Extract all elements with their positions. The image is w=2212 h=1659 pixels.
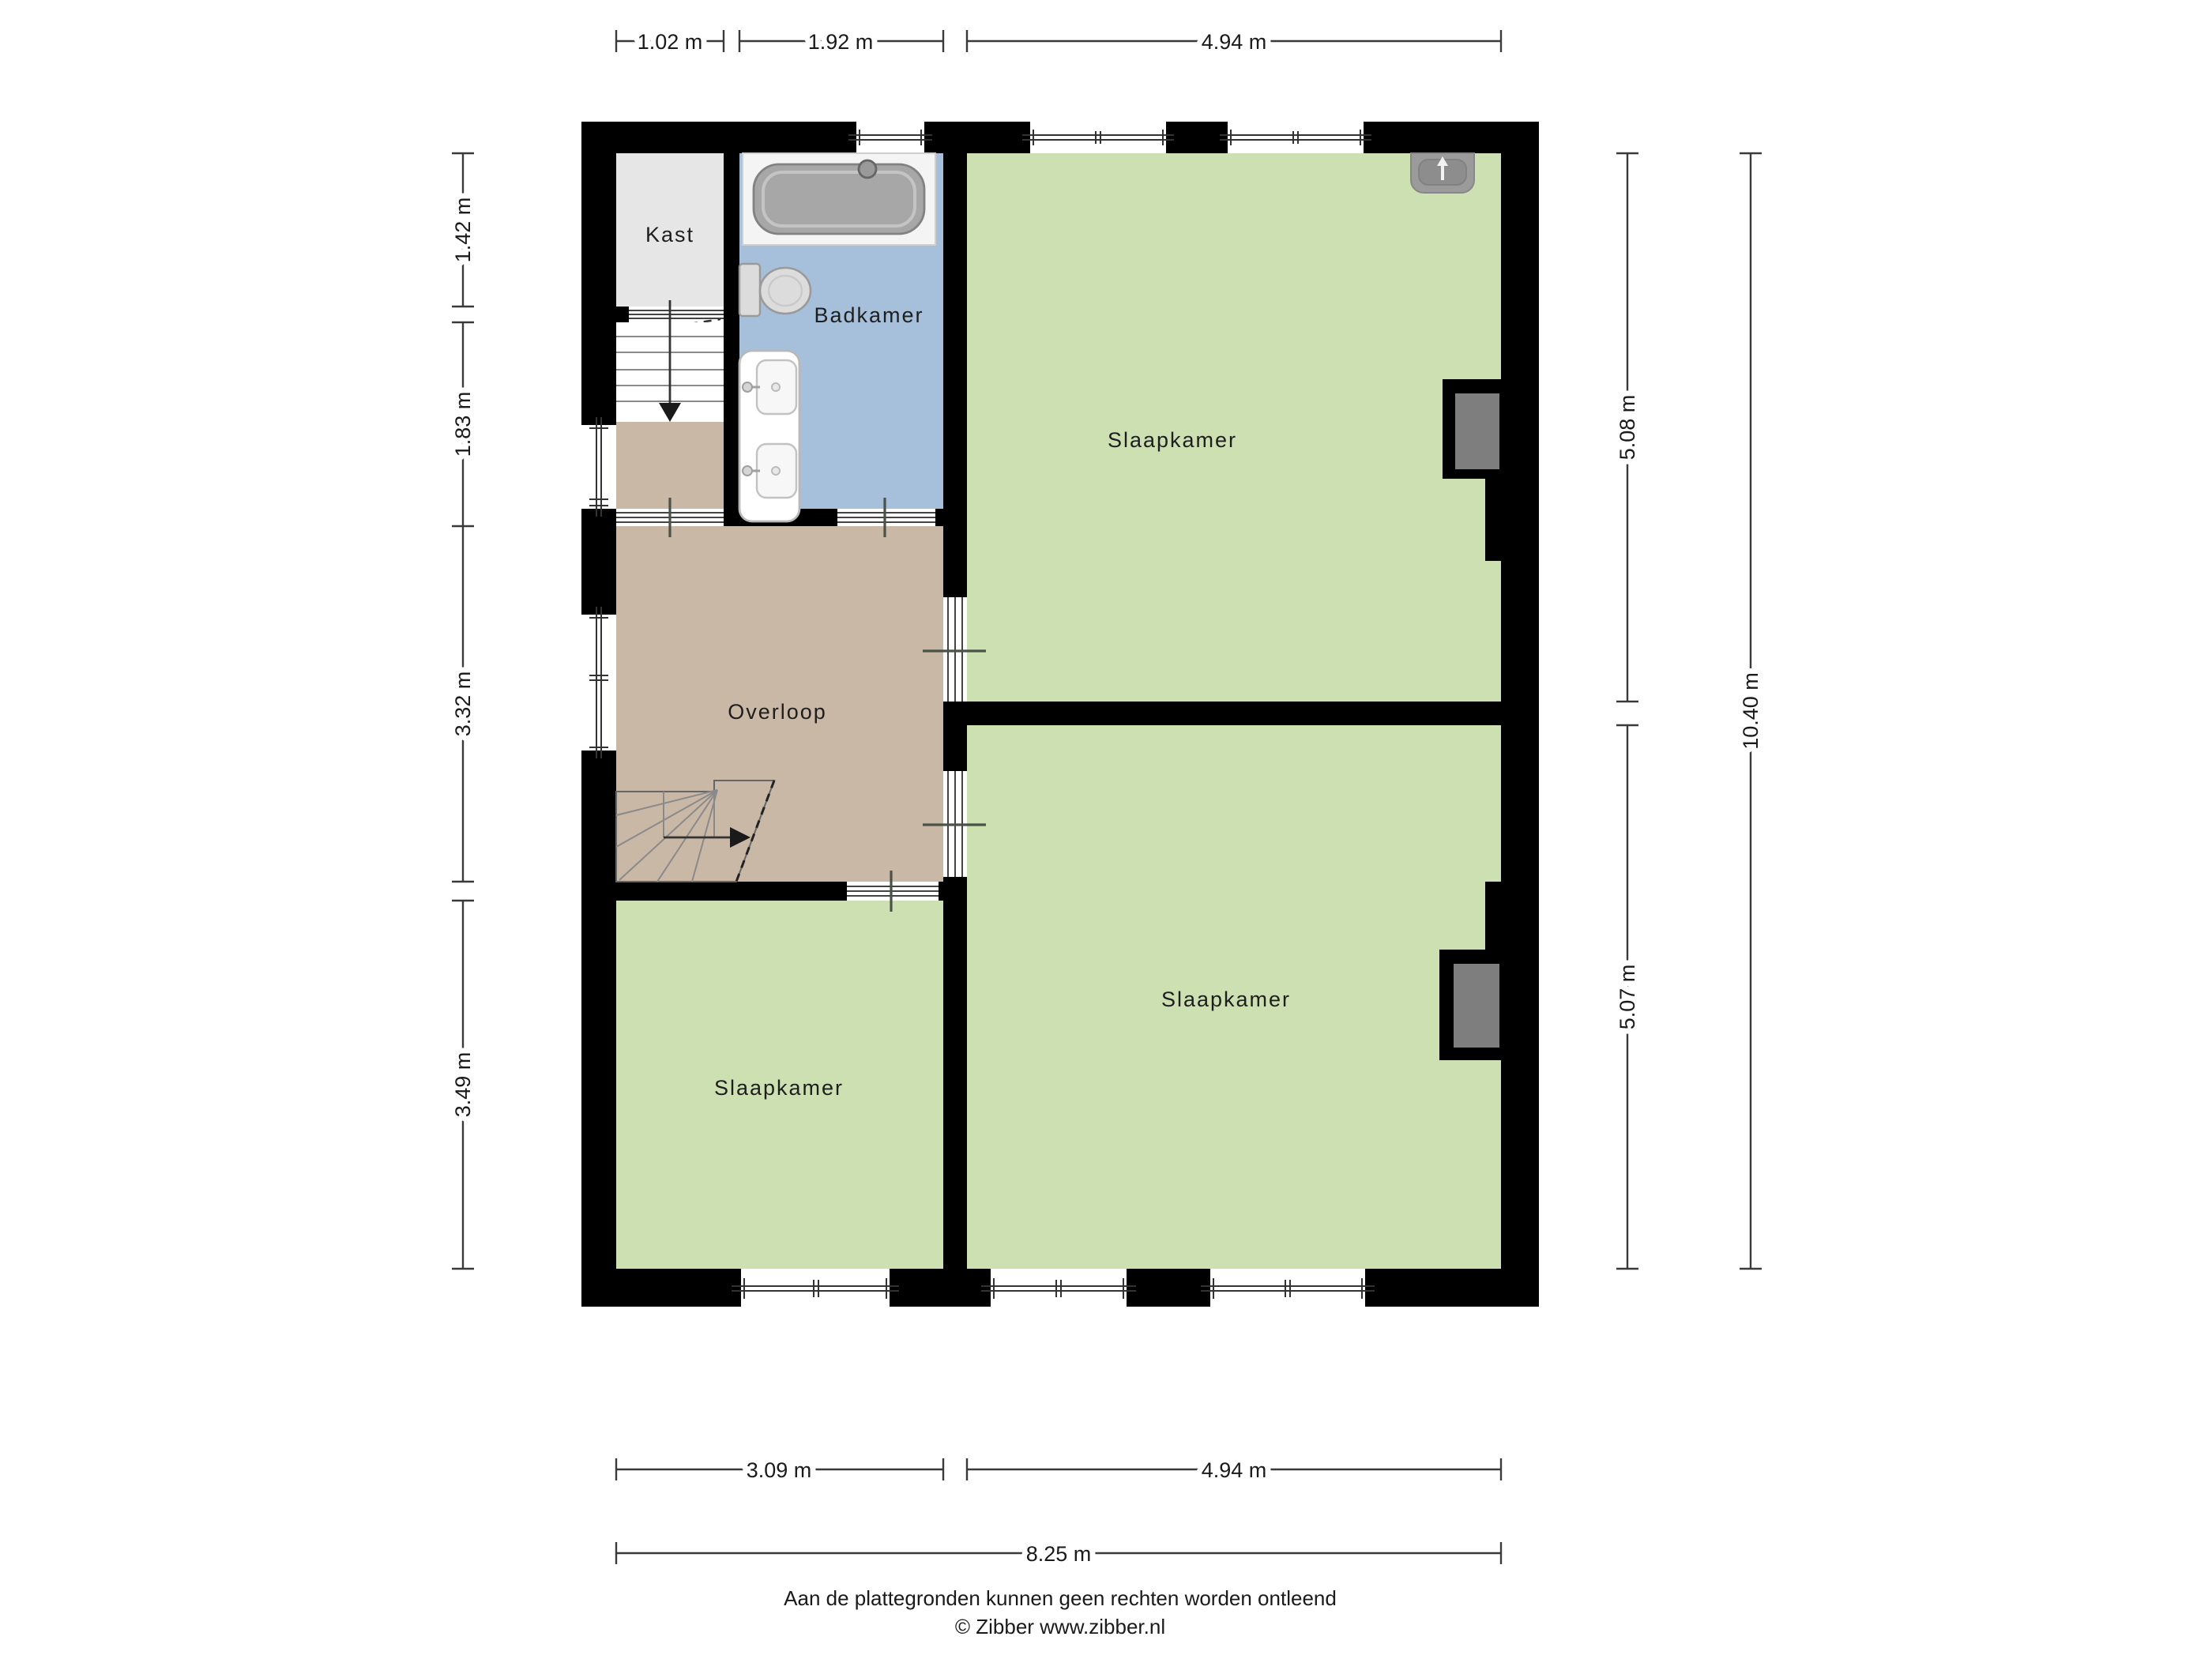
- window-bottom-slaapkamer-right-1: [981, 1269, 1136, 1307]
- wall-kast-badkamer: [724, 153, 739, 526]
- label-slaapkamer-bottom-right: Slaapkamer: [1161, 987, 1291, 1011]
- label-kast: Kast: [645, 223, 694, 246]
- room-slaapkamer-top-floor: [967, 153, 1501, 702]
- dimensions-top: 1.02 m 1.92 m 4.94 m: [616, 30, 1501, 54]
- dim-left-stairs: 1.83 m: [451, 392, 475, 457]
- window-bottom-slaapkamer-left: [732, 1269, 899, 1307]
- toilet: [739, 264, 811, 316]
- label-overloop: Overloop: [728, 700, 827, 724]
- label-slaapkamer-bottom-left: Slaapkamer: [714, 1076, 844, 1100]
- window-top-slaapkamer-2: [1220, 122, 1371, 153]
- dim-left-kast: 1.42 m: [451, 197, 475, 263]
- window-top-slaapkamer-1: [1022, 122, 1174, 153]
- window-left-hall: [581, 417, 616, 517]
- washbasin-faucet-icon: [743, 466, 752, 476]
- footer-disclaimer: Aan de plattegronden kunnen geen rechten…: [784, 1586, 1337, 1610]
- bathtub-faucet-icon: [859, 160, 876, 178]
- floor-plan-canvas: Kast Badkamer Overloop Slaapkamer Slaapk…: [0, 0, 2212, 1659]
- dim-right-slaapkamer-bottom: 5.07 m: [1616, 965, 1639, 1030]
- ventilation-unit: [1411, 153, 1474, 193]
- floor-plan-page: Kast Badkamer Overloop Slaapkamer Slaapk…: [0, 0, 2212, 1659]
- label-slaapkamer-top: Slaapkamer: [1108, 428, 1237, 452]
- dim-left-overloop: 3.32 m: [451, 671, 475, 737]
- dim-top-badkamer: 1.92 m: [808, 30, 874, 54]
- dim-left-slaapkamer: 3.49 m: [451, 1052, 475, 1118]
- dim-bottom-slaapkamer-right: 4.94 m: [1202, 1458, 1267, 1482]
- dim-bottom-total: 8.25 m: [1026, 1542, 1092, 1566]
- dim-top-slaapkamer: 4.94 m: [1202, 30, 1267, 54]
- hall-landing-floor: [616, 422, 724, 509]
- washbasin-double: [739, 351, 799, 521]
- bathtub: [743, 153, 935, 245]
- dim-top-kast: 1.02 m: [638, 30, 703, 54]
- wall-middle-bedrooms: [943, 702, 1501, 725]
- window-top-badkamer: [848, 122, 932, 153]
- dim-right-total: 10.40 m: [1739, 672, 1762, 750]
- label-badkamer: Badkamer: [814, 303, 924, 327]
- dimensions-right: 5.08 m 5.07 m 10.40 m: [1616, 153, 1762, 1269]
- dimensions-bottom: 3.09 m 4.94 m 8.25 m: [616, 1458, 1501, 1566]
- window-bottom-slaapkamer-right-2: [1201, 1269, 1375, 1307]
- footer: Aan de plattegronden kunnen geen rechten…: [784, 1586, 1337, 1638]
- footer-copyright: © Zibber www.zibber.nl: [955, 1615, 1165, 1638]
- washbasin-faucet-icon: [743, 382, 752, 392]
- dim-bottom-slaapkamer-left: 3.09 m: [747, 1458, 812, 1482]
- window-left-overloop: [581, 607, 616, 758]
- wall-outer-right: [1501, 153, 1539, 1269]
- dimensions-left: 1.42 m 1.83 m 3.32 m 3.49 m: [451, 153, 475, 1269]
- dim-right-slaapkamer-top: 5.08 m: [1616, 395, 1639, 461]
